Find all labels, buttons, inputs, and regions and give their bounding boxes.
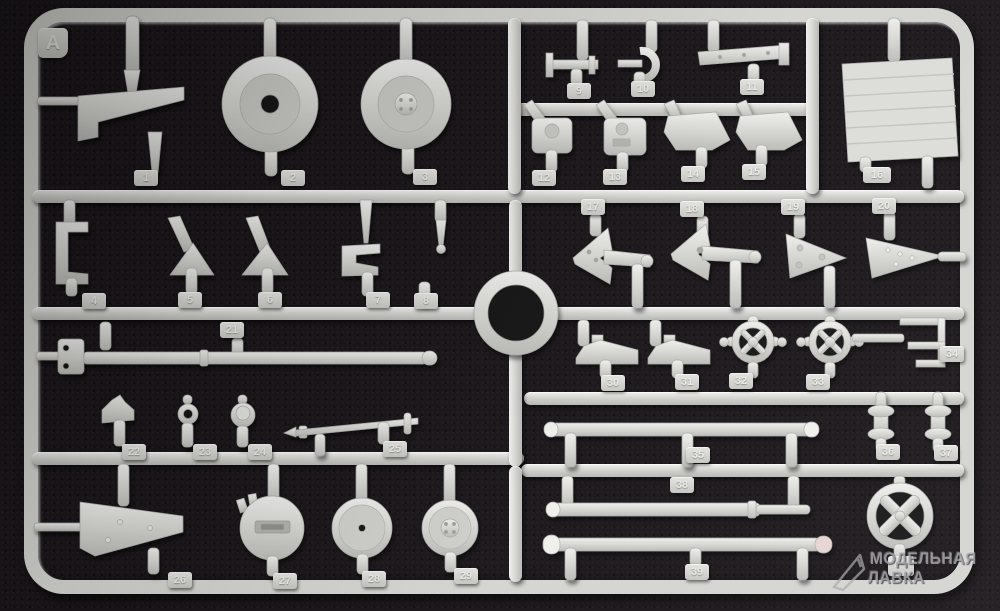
part-24-disc-fitting (231, 395, 255, 447)
part-tag-4: 4 (82, 293, 106, 309)
part-3-wheel (361, 18, 451, 174)
part-tag-16: 16 (863, 167, 891, 183)
part-22-fitting (102, 395, 134, 446)
part-23-ring-fitting (178, 395, 198, 447)
part-tag-28: 28 (362, 571, 386, 587)
part-tag-7: 7 (366, 292, 390, 308)
sprue-letter-tag: A (38, 28, 68, 58)
part-tag-32: 32 (729, 373, 753, 389)
part-tag-1: 1 (134, 170, 158, 186)
part-tag-30: 30 (601, 375, 625, 391)
part-8-pin (419, 200, 446, 304)
part-18-arrow (671, 216, 761, 308)
part-31-wedge (648, 320, 710, 378)
part-tag-22: 22 (122, 444, 146, 460)
part-tag-21: 21 (220, 322, 244, 338)
part-tag-9: 9 (567, 83, 591, 99)
part-tag-15: 15 (742, 164, 766, 180)
part-tag-25: 25 (383, 441, 407, 457)
part-tag-35: 35 (686, 447, 710, 463)
part-36-spool (868, 392, 894, 452)
part-tag-13: 13 (603, 169, 627, 185)
part-11-angle-bar (698, 20, 789, 82)
part-13-housing (596, 100, 646, 172)
part-tag-39: 39 (685, 564, 709, 580)
part-27-drum (236, 464, 304, 576)
part-14-bracket (664, 100, 730, 168)
part-tag-20: 20 (872, 198, 896, 214)
part-tag-3: 3 (413, 169, 437, 185)
part-tag-36: 36 (876, 444, 900, 460)
part-34-bracket (852, 318, 945, 367)
part-tag-14: 14 (681, 166, 705, 182)
part-x-wheel (867, 476, 933, 562)
part-30-wedge (576, 320, 638, 378)
part-33-spoked-wheel (797, 316, 864, 378)
part-2-wheel (222, 18, 318, 176)
part-tag-23: 23 (193, 444, 217, 460)
model-kit-sprue-photo: A 1 2 3 4 5 6 7 8 9 10 11 12 13 14 15 16… (0, 0, 1000, 611)
part-tag-33: 33 (806, 374, 830, 390)
part-tag-6: 6 (258, 292, 282, 308)
part-16-panel (842, 18, 958, 188)
part-29-disc-hub (422, 464, 478, 572)
part-tag-12: 12 (532, 170, 556, 186)
part-tag-2: 2 (281, 170, 305, 186)
part-35-rod (544, 422, 819, 467)
part-17-arrow (573, 214, 653, 308)
part-tag-11: 11 (740, 79, 764, 95)
part-28-disc (332, 464, 392, 574)
part-tag-10: 10 (631, 81, 655, 97)
part-26-panel (34, 464, 183, 574)
part-9-bracket (546, 20, 598, 85)
part-tag-24: 24 (248, 444, 272, 460)
part-tag-37: 37 (934, 445, 958, 461)
sprue-parts-layer (0, 0, 1000, 611)
part-tag-5: 5 (178, 292, 202, 308)
part-10-hook (618, 20, 657, 86)
part-32-spoked-wheel (720, 316, 787, 378)
part-tag-34: 34 (940, 346, 964, 362)
part-tag-17: 17 (581, 199, 605, 215)
part-tag-18: 18 (680, 201, 704, 217)
sprue-ring (474, 271, 558, 355)
part-20-triangle (866, 212, 966, 278)
part-tag-29: 29 (454, 568, 478, 584)
part-15-bracket (736, 100, 802, 166)
part-tag-31: 31 (675, 374, 699, 390)
part-tag-38: 38 (670, 477, 694, 493)
part-tag-8: 8 (414, 293, 438, 309)
part-19-plate (786, 214, 846, 308)
part-tag-27: 27 (273, 573, 297, 589)
part-37-spool (925, 392, 951, 452)
part-tag-19: 19 (781, 199, 805, 215)
part-4-channel (56, 200, 88, 296)
part-12-housing (524, 100, 572, 172)
part-7-clamp (342, 200, 380, 296)
part-6-triangle (242, 216, 288, 294)
part-tag-26: 26 (168, 572, 192, 588)
part-tag-obscured (888, 556, 914, 576)
part-5-triangle (168, 216, 214, 294)
